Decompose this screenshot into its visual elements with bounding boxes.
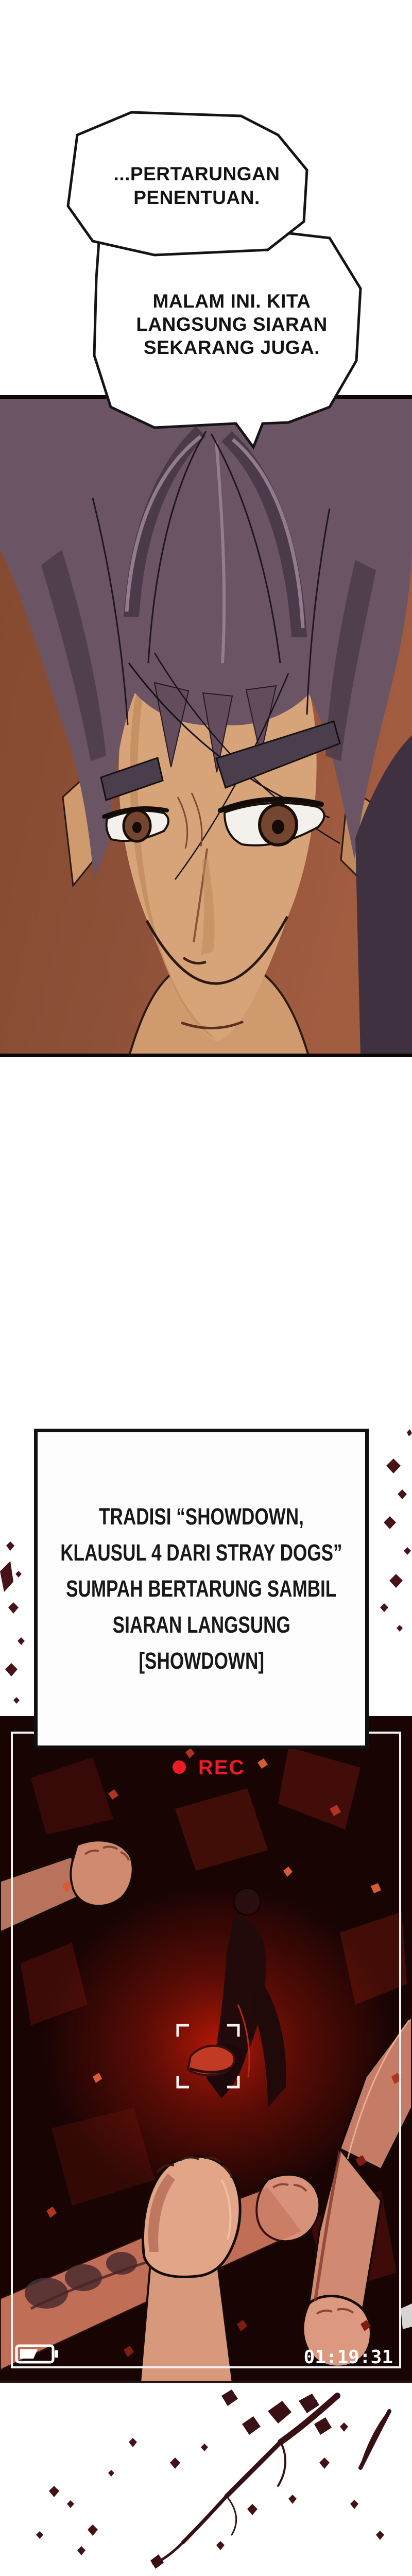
- bubble-2-line-2: LANGSUNG SIARAN: [136, 314, 327, 335]
- camera-panel: REC 01:19:31: [0, 1716, 412, 2383]
- bubble-1-line-1: ...PERTARUNGAN: [114, 163, 280, 184]
- rec-dot-icon: [173, 1760, 186, 1774]
- narration-line-5: [SHOWDOWN]: [139, 1643, 264, 1679]
- blood-speck-cluster-right: [380, 1429, 412, 1632]
- blood-splatter-bottom: [0, 2380, 412, 2576]
- face-panel-artwork: [0, 395, 412, 1057]
- blood-speck-cluster-left: [0, 1541, 25, 1704]
- timestamp: 01:19:31: [304, 2347, 393, 2368]
- bubble-2-line-1: MALAM INI. KITA: [153, 291, 311, 312]
- camera-panel-artwork: REC 01:19:31: [0, 1716, 412, 2383]
- rec-label: REC: [198, 1756, 245, 1779]
- narration-line-1: TRADISI “SHOWDOWN,: [99, 1499, 304, 1535]
- bubble-2-line-3: SEKARANG JUGA.: [144, 337, 320, 358]
- narration-box: TRADISI “SHOWDOWN, KLAUSUL 4 DARI STRAY …: [34, 1429, 369, 1749]
- speech-bubble-1: ...PERTARUNGAN PENENTUAN.: [51, 103, 319, 268]
- narration-line-4: SIARAN LANGSUNG: [112, 1607, 290, 1643]
- comic-page: MALAM INI. KITA LANGSUNG SIARAN SEKARANG…: [0, 0, 412, 2576]
- face-panel: [0, 395, 412, 1057]
- bubble-1-line-2: PENENTUAN.: [133, 187, 260, 208]
- narration-line-2: KLAUSUL 4 DARI STRAY DOGS”: [60, 1535, 342, 1571]
- narration-line-3: SUMPAH BERTARUNG SAMBIL: [66, 1571, 336, 1607]
